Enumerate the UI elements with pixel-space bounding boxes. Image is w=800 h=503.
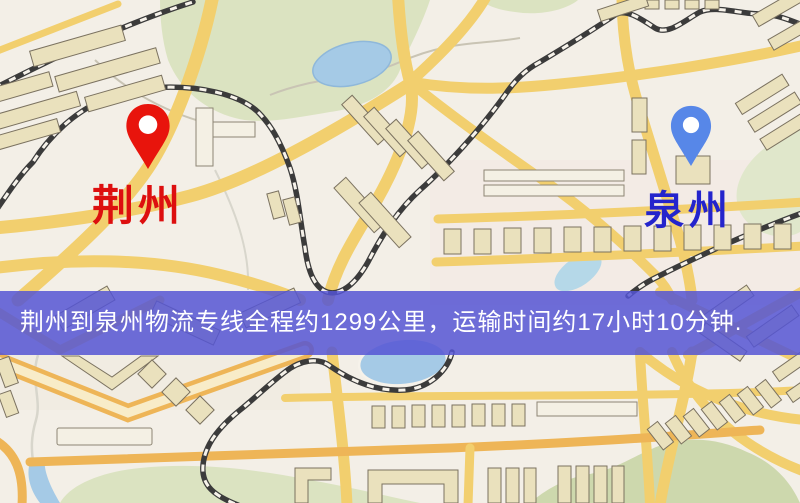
building bbox=[665, 0, 679, 9]
building bbox=[576, 466, 589, 503]
origin-city-label: 荆州 bbox=[83, 172, 193, 233]
building bbox=[488, 468, 501, 503]
building bbox=[372, 406, 385, 428]
building bbox=[705, 0, 719, 9]
origin-pin-icon[interactable] bbox=[123, 102, 173, 170]
building bbox=[774, 224, 791, 249]
building bbox=[444, 229, 461, 254]
destination-pin-icon[interactable] bbox=[668, 104, 714, 167]
building bbox=[537, 402, 637, 416]
building bbox=[558, 466, 571, 503]
building bbox=[213, 122, 255, 137]
pin-body bbox=[126, 104, 169, 169]
pin-hole bbox=[139, 115, 158, 134]
pin-body bbox=[671, 106, 711, 166]
building bbox=[685, 0, 699, 9]
building bbox=[392, 406, 405, 428]
map-canvas[interactable] bbox=[0, 0, 800, 503]
road bbox=[468, 448, 470, 503]
building bbox=[432, 405, 445, 427]
building bbox=[196, 108, 213, 166]
building bbox=[594, 227, 611, 252]
building bbox=[474, 229, 491, 254]
building bbox=[506, 468, 519, 503]
pin-hole bbox=[683, 117, 699, 133]
building bbox=[612, 466, 624, 503]
route-info-banner: 荆州到泉州物流专线全程约1299公里，运输时间约17小时10分钟. bbox=[0, 291, 800, 355]
building bbox=[57, 428, 152, 445]
building bbox=[744, 224, 761, 249]
building bbox=[472, 404, 485, 426]
building bbox=[632, 140, 646, 174]
destination-city-label: 泉州 bbox=[636, 178, 740, 236]
building bbox=[492, 404, 505, 426]
building bbox=[632, 98, 647, 132]
building bbox=[484, 185, 624, 196]
building bbox=[564, 227, 581, 252]
building bbox=[594, 466, 607, 503]
building bbox=[512, 404, 525, 426]
building bbox=[524, 468, 536, 503]
building bbox=[504, 228, 521, 253]
map-view[interactable]: 荆州 泉州 荆州到泉州物流专线全程约1299公里，运输时间约17小时10分钟. bbox=[0, 0, 800, 503]
building bbox=[534, 228, 551, 253]
building bbox=[484, 170, 624, 181]
building bbox=[452, 405, 465, 427]
building bbox=[412, 405, 425, 427]
